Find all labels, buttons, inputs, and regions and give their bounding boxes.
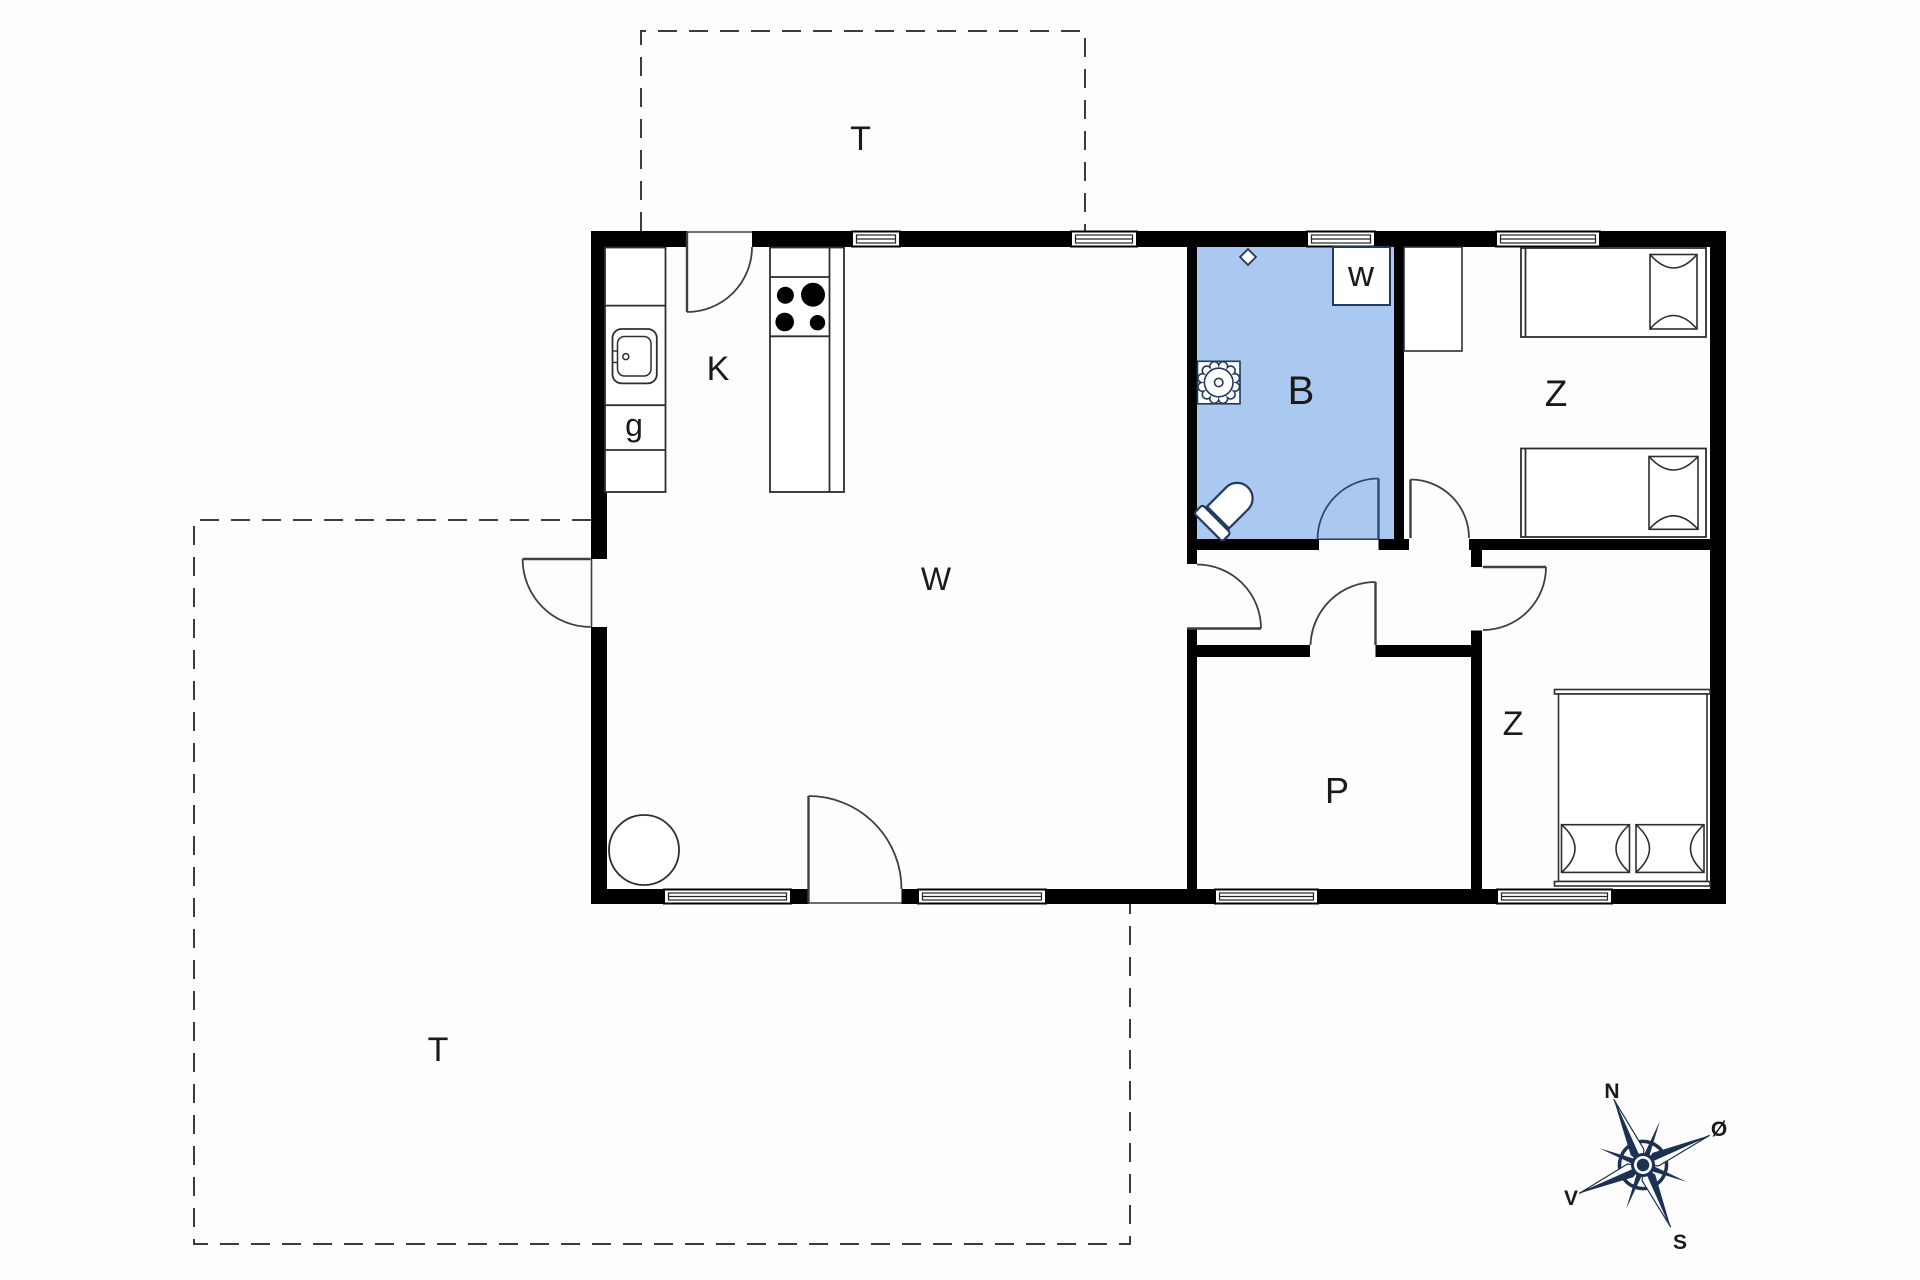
svg-text:S: S [1673,1231,1687,1254]
svg-text:K: K [707,350,730,388]
svg-text:W: W [921,561,952,597]
svg-text:w: w [1347,253,1375,294]
svg-text:Z: Z [1503,705,1524,743]
svg-text:T: T [850,120,871,158]
svg-text:P: P [1325,770,1349,811]
svg-text:N: N [1604,1080,1619,1103]
svg-text:B: B [1288,369,1315,413]
svg-text:Ø: Ø [1711,1118,1727,1141]
svg-text:Z: Z [1545,373,1568,414]
svg-text:V: V [1564,1187,1578,1210]
svg-text:g: g [625,407,643,443]
svg-text:T: T [428,1031,449,1069]
